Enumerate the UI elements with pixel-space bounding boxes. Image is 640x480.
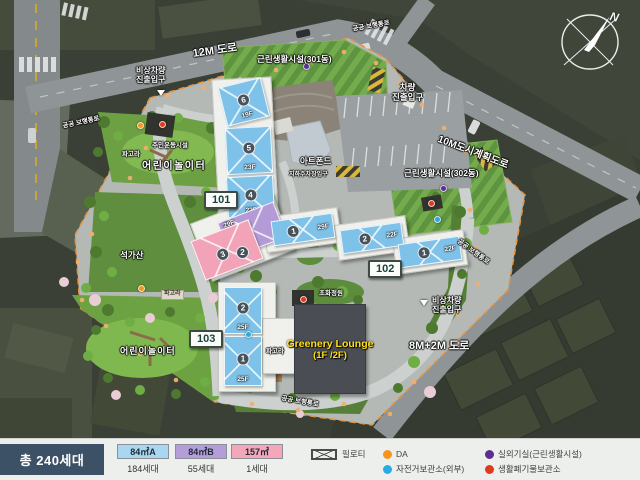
legend-type-157-count: 1세대 xyxy=(231,462,283,475)
floor-label: 23F xyxy=(244,164,256,172)
legend-type-157: 157㎡ xyxy=(231,444,283,459)
legend-waste-label: 생활폐기물보관소 xyxy=(498,464,561,475)
underground-parking-label: 지하주차장입구 xyxy=(289,172,328,179)
floor-label: 22F xyxy=(386,231,398,239)
vehicle-entrance-label: 차량 진출입구 xyxy=(392,82,423,102)
legend-type-84a-count: 184세대 xyxy=(117,462,169,475)
flower-garden-label: 초화정원 xyxy=(319,290,343,298)
entrance-marker-icon xyxy=(157,90,165,96)
outdoor-unit-dot xyxy=(303,63,310,70)
legend-piloti-label: 필로티 xyxy=(342,449,365,460)
outdoor-unit-legend-dot xyxy=(485,450,494,459)
piloti-icon xyxy=(311,449,337,460)
unit-number-circle: 6 xyxy=(236,92,252,108)
legend-type-84a: 84㎡A xyxy=(117,444,169,459)
rock-garden-label: 석가산 xyxy=(120,250,143,260)
da-legend-dot xyxy=(383,450,392,459)
waste-storage-dot xyxy=(300,296,307,303)
building-101-unit-5: 5 23F xyxy=(225,126,273,175)
unit-number-circle: 2 xyxy=(237,302,250,315)
road-label-8m: 8M+2M 도로 xyxy=(409,340,469,353)
unit-number-circle: 1 xyxy=(417,245,432,260)
playground-label: 어린이놀이터 xyxy=(120,346,176,357)
building-103-unit-2: 2 25F xyxy=(224,287,262,334)
entrance-marker-icon xyxy=(420,300,428,306)
unit-number-circle: 4 xyxy=(244,188,258,202)
unit-number-circle: 5 xyxy=(242,141,256,155)
legend-da-label: DA xyxy=(396,449,408,460)
facility-302-label: 근린생활시설(302동) xyxy=(404,168,479,178)
unit-number-circle: 1 xyxy=(237,352,250,365)
waste-storage-dot xyxy=(159,121,166,128)
pergola-label: 파고라 xyxy=(266,348,284,356)
emergency-entrance-label: 비상차량 진출입구 xyxy=(136,66,165,85)
legend-type-84b: 84㎡B xyxy=(175,444,227,459)
waste-storage-dot xyxy=(428,200,435,207)
bike-legend-dot xyxy=(383,465,392,474)
legend-type-84b-count: 55세대 xyxy=(175,462,227,475)
building-103-unit-1: 1 25F xyxy=(224,336,262,386)
unit-number-circle: 1 xyxy=(286,223,301,238)
waste-legend-dot xyxy=(485,465,494,474)
legend-bar: 총 240세대 84㎡A 184세대 84㎡B 55세대 157㎡ 1세대 필로… xyxy=(0,438,640,480)
floor-label: 19F xyxy=(241,110,254,120)
greenery-lounge-line1: Greenery Lounge xyxy=(284,338,376,350)
da-dot xyxy=(137,122,144,129)
bike-storage-dot xyxy=(245,331,252,338)
pergola-label: 파고라 xyxy=(122,151,140,159)
legend-total-households: 총 240세대 xyxy=(0,444,104,475)
badge-101: 101 xyxy=(204,191,238,209)
floor-label: 29F xyxy=(317,222,329,230)
outdoor-unit-dot xyxy=(440,185,447,192)
residents-exercise-label: 주민운동시설 xyxy=(152,142,188,150)
legend-outdoor-unit-label: 실외기실(근린생활시설) xyxy=(498,449,582,460)
bike-storage-dot xyxy=(434,216,441,223)
da-dot xyxy=(138,285,145,292)
pergola-sign-label: 파고라 xyxy=(161,290,184,300)
floor-label: 25F xyxy=(237,324,248,331)
site-plan-screenshot: 6 19F 5 23F 4 22F 29F 3 2 1 29F 2 22F 1 … xyxy=(0,0,640,480)
unit-number-circle: 3 xyxy=(214,246,231,263)
emergency-entrance-label: 비상차량 진출입구 xyxy=(432,296,461,315)
badge-103: 103 xyxy=(189,330,223,348)
legend-bike-label: 자전거보관소(외부) xyxy=(396,464,464,475)
unit-number-circle: 2 xyxy=(358,232,373,247)
greenery-lounge-label: Greenery Lounge (1F /2F) xyxy=(284,338,376,361)
playground-label: 어린이놀이터 xyxy=(142,161,206,173)
art-pond-label: 아트폰드 xyxy=(300,156,331,166)
badge-102: 102 xyxy=(368,260,402,278)
facility-301-label: 근린생활시설(301동) xyxy=(257,54,332,64)
floor-label: 25F xyxy=(237,376,248,383)
unit-number-circle: 2 xyxy=(236,246,249,259)
greenery-lounge-line2: (1F /2F) xyxy=(284,350,376,361)
floor-label: 22F xyxy=(444,245,456,253)
